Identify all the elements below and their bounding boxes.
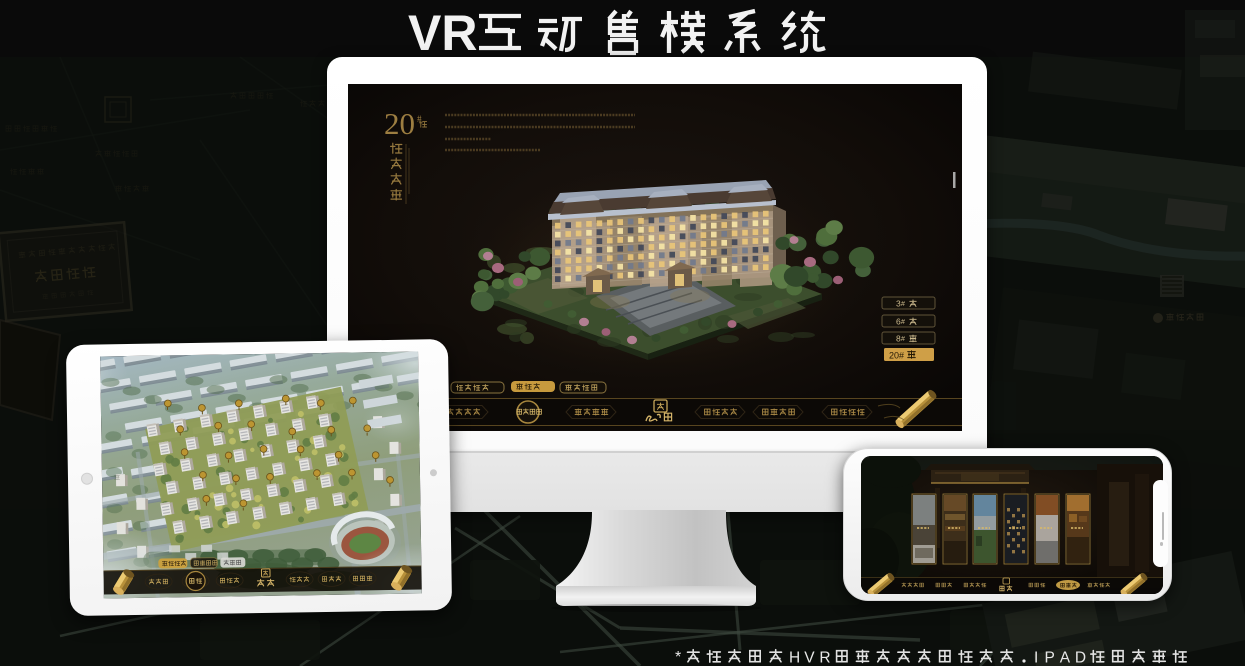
svg-text:I: I bbox=[1034, 650, 1040, 666]
svg-text:D: D bbox=[1075, 650, 1088, 666]
svg-text:R: R bbox=[819, 650, 832, 666]
svg-text:V: V bbox=[804, 650, 816, 666]
svg-text:P: P bbox=[1045, 650, 1057, 666]
svg-text:H: H bbox=[789, 650, 802, 666]
svg-text:*: * bbox=[675, 649, 681, 666]
svg-text:A: A bbox=[1060, 650, 1072, 666]
